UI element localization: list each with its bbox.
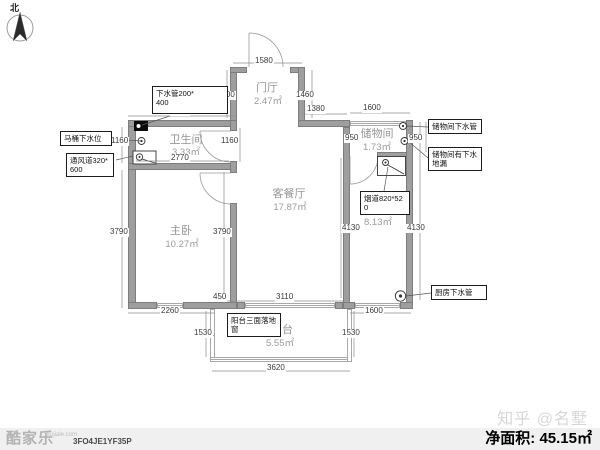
room-area-bedroom: 10.27㎡ [165, 240, 198, 250]
dim-top-mid: 1380 [306, 105, 326, 114]
dim-450: 450 [212, 293, 227, 302]
wall-mid-seg1 [230, 120, 237, 131]
toilet-drain-icon [138, 138, 145, 145]
plan-code: 3FO4JE1YF35P [73, 438, 132, 446]
wall-bedroom-bottom-left [128, 302, 157, 309]
room-label-storage: 储物间 [361, 129, 394, 140]
room-area-foyer: 2.47㎡ [254, 97, 282, 107]
dim-kitchen-bottom: 1600 [364, 307, 384, 316]
kitchen-drain-icon [395, 291, 405, 301]
dim-kitchen-left: 4130 [341, 224, 361, 233]
annotation-storage-drain: 储物间下水管 [428, 119, 482, 134]
room-label-living-dining: 客餐厅 [273, 189, 306, 200]
annotation-kitchen-drain: 厨房下水管 [431, 285, 487, 300]
dim-bath-inner: 2770 [170, 154, 190, 163]
window-living-balcony [245, 303, 335, 308]
room-area-balcony: 5.55㎡ [266, 339, 294, 349]
flue-icon [378, 157, 406, 176]
wall-kitchen-left [343, 127, 350, 309]
room-label-foyer: 门厅 [256, 83, 278, 94]
annotation-storage-floor-drain: 储物间有下水 地漏 [428, 147, 482, 171]
room-label-bathroom: 卫生间 [170, 135, 203, 146]
window-balcony-bottom [210, 357, 352, 362]
window-storage-top [350, 121, 406, 126]
dim-balcony-right: 1530 [341, 329, 361, 338]
dim-living-bottom: 3110 [275, 293, 294, 302]
dim-storage-left: 950 [344, 134, 359, 143]
room-area-kitchen: 8.13㎡ [364, 218, 392, 228]
wall-bedroom-bottom-right [183, 302, 237, 309]
wall-mid-seg2 [230, 161, 237, 173]
dim-bath-left: 1160 [110, 137, 129, 146]
room-label-bedroom: 主卧 [170, 226, 192, 237]
dim-balcony-left: 1530 [193, 329, 213, 338]
dim-balcony-bottom: 3620 [266, 364, 286, 373]
annotation-balcony-windows: 阳台三面落地 窗 [227, 313, 281, 337]
wall-bath-bottom [128, 163, 237, 170]
dim-foyer-right: 1460 [295, 91, 315, 100]
dim-kitchen-right: 4130 [406, 224, 426, 233]
door-arc-storage [350, 156, 378, 184]
dim-storage-top: 1600 [362, 104, 382, 113]
wall-mid-seg3 [230, 203, 237, 309]
annotation-drain-pipe: 下水管200* 400 [152, 86, 228, 114]
dim-storage-right: 950 [408, 134, 423, 143]
wall-kitchen-bottom-left [343, 302, 355, 309]
wall-living-bottom-right [335, 302, 343, 309]
annotation-vent-duct: 通风道320* 600 [66, 153, 114, 177]
dim-bedroom-left: 3790 [109, 228, 129, 237]
floor-plan-canvas: 北 [0, 0, 600, 450]
wall-bath-top [128, 120, 237, 127]
wall-top-mid [298, 120, 350, 127]
wall-outer-left [128, 120, 136, 309]
annotation-toilet-drain: 马桶下水位 [60, 131, 112, 146]
room-area-storage: 1.73㎡ [363, 143, 391, 153]
net-area-total: 净面积: 45.15㎡ [485, 431, 592, 448]
dim-bedroom-right: 3790 [212, 228, 232, 237]
annotation-flue: 烟道820*52 0 [360, 191, 410, 215]
dim-foyer-top: 1580 [254, 57, 274, 66]
dim-bath-right: 1160 [220, 137, 239, 146]
compass-icon [4, 10, 36, 44]
room-area-living-dining: 17.87㎡ [273, 203, 306, 213]
wall-foyer-top-left [230, 67, 247, 73]
door-arc-bedroom [200, 173, 231, 204]
zhihu-watermark: 知乎 @名墅 [497, 412, 588, 428]
dim-bedroom-bottom: 2260 [160, 307, 180, 316]
wall-kitchen-bottom-right [400, 302, 413, 309]
wall-living-bottom-left [237, 302, 245, 309]
